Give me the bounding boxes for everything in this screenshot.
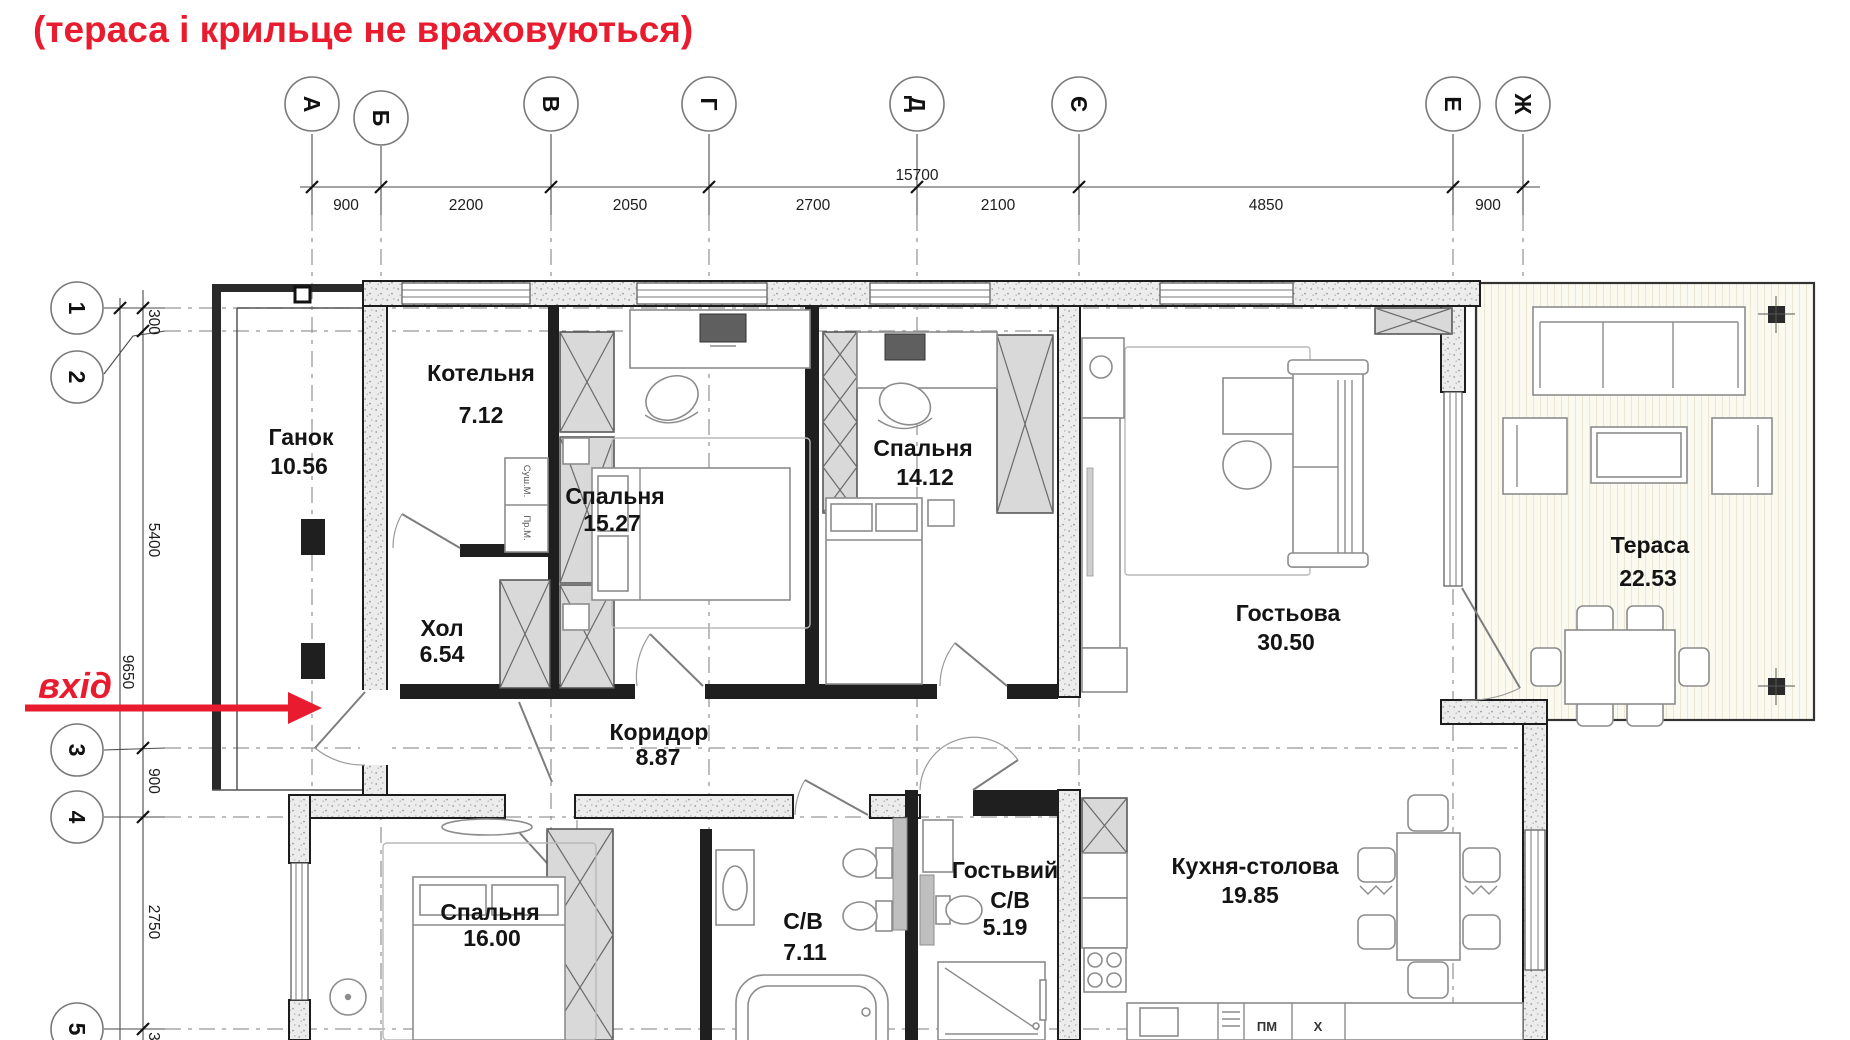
floor-plan-page: Суш.М. Пр.М. (0, 0, 1850, 1040)
axis-label: В (538, 96, 564, 113)
window-bedroom-16 (291, 863, 308, 1000)
dim-seg: 4850 (1249, 197, 1284, 214)
svg-text:Гостьвий: Гостьвий (952, 857, 1058, 883)
room-label-bedroom-14: Спальня 14.12 (873, 435, 972, 490)
coffee-table (1223, 441, 1271, 489)
dim-seg: 900 (1475, 197, 1501, 214)
dim-seg: 900 (145, 768, 162, 794)
svg-text:5.19: 5.19 (983, 914, 1028, 940)
page-title: (тераса і крильце не враховуються) (33, 9, 693, 50)
dryer-label: Суш.М. (521, 465, 532, 497)
toilet-icon (843, 901, 892, 931)
svg-text:6.54: 6.54 (420, 641, 465, 667)
bathtub-icon (736, 975, 888, 1040)
toilet-icon (843, 848, 892, 878)
svg-text:7.11: 7.11 (783, 939, 827, 965)
window-terrace-wall (1444, 392, 1462, 586)
room-label-kitchen: Кухня-столова 19.85 (1171, 853, 1338, 908)
axis-label: А (299, 96, 325, 113)
living-room-furniture (1082, 338, 1368, 692)
entrance-arrowhead-icon (288, 692, 322, 724)
wall-niche-hatch (1375, 308, 1452, 334)
terrace-sofa (1533, 307, 1745, 395)
svg-text:Кухня-столова: Кухня-столова (1171, 853, 1338, 879)
svg-text:15.27: 15.27 (583, 510, 641, 536)
dim-seg: 5400 (145, 523, 162, 558)
dim-seg: 2050 (613, 197, 648, 214)
svg-text:19.85: 19.85 (1221, 882, 1279, 908)
terrace-armchair (1712, 418, 1772, 494)
window-kitchen-east (1525, 830, 1545, 970)
room-label-hall: Хол 6.54 (420, 615, 465, 667)
axis-label: 1 (64, 302, 90, 315)
svg-text:Гостьова: Гостьова (1236, 600, 1341, 626)
dim-total-top: 15700 (895, 167, 938, 184)
wardrobe (997, 335, 1053, 513)
kitchen-wall-unit (1082, 338, 1127, 692)
left-dimension-chain: 9650 300 5400 900 2750 300 1 2 3 4 5 (51, 282, 165, 1040)
axis-label: 3 (64, 744, 90, 757)
entrance-annotation: вхід (25, 665, 322, 724)
dim-seg: 2750 (145, 905, 162, 940)
dining-set (1358, 795, 1500, 998)
porch-light-icon (295, 287, 310, 302)
axis-label: 2 (64, 371, 90, 384)
svg-text:8.87: 8.87 (636, 744, 681, 770)
dim-total-left: 9650 (119, 655, 136, 690)
room-label-living: Гостьова 30.50 (1236, 600, 1341, 655)
svg-text:Коридор: Коридор (610, 719, 709, 745)
terrace-armchair (1503, 418, 1567, 494)
svg-text:Хол: Хол (420, 615, 463, 641)
top-dimension-chain: 15700 900 2200 2050 2700 2100 4850 900 А… (285, 77, 1550, 215)
terrace (1476, 283, 1814, 726)
axis-label: 5 (64, 1023, 90, 1036)
axis-label: Є (1066, 96, 1092, 112)
dim-seg: 300 (145, 309, 162, 335)
svg-text:14.12: 14.12 (896, 464, 954, 490)
wardrobe (500, 580, 550, 688)
svg-text:С/В: С/В (783, 908, 823, 934)
entrance-label: вхід (38, 665, 112, 706)
toilet-icon (936, 896, 982, 924)
washer-dryer-closet: Суш.М. Пр.М. (505, 458, 548, 552)
svg-text:Спальня: Спальня (440, 899, 539, 925)
svg-text:30.50: 30.50 (1257, 629, 1315, 655)
axis-label: Б (368, 110, 394, 127)
svg-text:Котельня: Котельня (427, 360, 535, 386)
axis-label: Е (1440, 96, 1466, 111)
dishwasher-label: ПМ (1257, 1019, 1277, 1034)
axis-label: Д (904, 96, 930, 112)
svg-text:16.00: 16.00 (463, 925, 521, 951)
kitchen-tall-cabinet (1082, 798, 1127, 853)
svg-text:Тераса: Тераса (1611, 532, 1690, 558)
stove-icon (1084, 948, 1126, 992)
svg-text:Ганок: Ганок (269, 424, 334, 450)
svg-text:С/В: С/В (990, 887, 1030, 913)
wardrobe (823, 332, 857, 513)
window-boiler (402, 283, 530, 304)
dim-seg: 2200 (449, 197, 484, 214)
window-bedroom-14 (870, 283, 990, 304)
porch (212, 284, 363, 790)
axis-label: Ж (1510, 93, 1536, 115)
kitchen-furniture: ПМ Х (1082, 795, 1523, 1040)
window-bedroom-15 (637, 283, 767, 304)
dim-seg: 300 (145, 1032, 162, 1040)
kitchen-counter: ПМ Х (1127, 1003, 1523, 1040)
hob-label: Х (1314, 1019, 1323, 1034)
room-label-boiler: Котельня 7.12 (427, 360, 535, 428)
room-label-corridor: Коридор 8.87 (610, 719, 709, 770)
dim-seg: 2700 (796, 197, 831, 214)
dim-seg: 900 (333, 197, 359, 214)
floor-plan-svg: Суш.М. Пр.М. (0, 0, 1850, 1040)
axis-bubbles-left: 1 2 3 4 5 (51, 282, 103, 1040)
svg-text:10.56: 10.56 (270, 453, 328, 479)
axis-label: 4 (64, 811, 90, 824)
shower-tray-icon (938, 962, 1046, 1040)
washer-label: Пр.М. (521, 515, 532, 540)
svg-text:Спальня: Спальня (565, 483, 664, 509)
window-living (1160, 283, 1293, 304)
axis-label: Г (696, 97, 722, 110)
room-label-hanok: Ганок 10.56 (269, 424, 334, 479)
svg-text:Спальня: Спальня (873, 435, 972, 461)
wardrobe (560, 332, 614, 432)
dim-seg: 2100 (981, 197, 1016, 214)
svg-text:22.53: 22.53 (1619, 565, 1677, 591)
svg-text:7.12: 7.12 (459, 402, 504, 428)
room-label-bathroom: С/В 7.11 (783, 908, 827, 965)
